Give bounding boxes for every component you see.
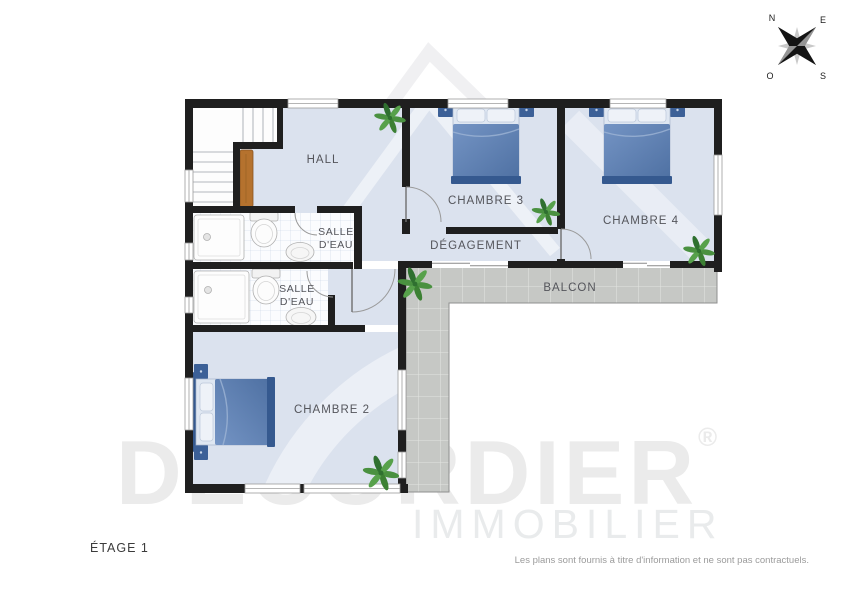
label-balcon: BALCON bbox=[543, 282, 596, 294]
shower-1 bbox=[194, 215, 244, 260]
label-salle-eau-2-line1: SALLE bbox=[279, 283, 315, 295]
shower-drain-1 bbox=[204, 234, 211, 241]
label-salle-eau-1-line1: SALLE bbox=[318, 226, 354, 238]
shower-2 bbox=[194, 271, 249, 323]
floor-label: ÉTAGE 1 bbox=[90, 541, 149, 555]
label-chambre3: CHAMBRE 3 bbox=[448, 195, 524, 207]
shower-drain-2 bbox=[205, 287, 212, 294]
wood-railing bbox=[240, 150, 253, 207]
balcony-floor bbox=[406, 266, 717, 492]
label-degagement: DÉGAGEMENT bbox=[430, 239, 522, 252]
compass-rose-icon: N E S O bbox=[759, 8, 835, 84]
compass-north-label: N bbox=[769, 13, 776, 23]
compass-west-label: O bbox=[766, 71, 773, 81]
compass-east-label: E bbox=[820, 15, 826, 25]
compass-south-label: S bbox=[820, 71, 826, 81]
floor-plan-drawing: HALL CHAMBRE 3 CHAMBRE 4 DÉGAGEMENT BALC… bbox=[0, 0, 848, 600]
label-salle-eau-1-line2: D'EAU bbox=[319, 239, 353, 251]
toilet-2 bbox=[253, 276, 279, 304]
label-hall: HALL bbox=[307, 154, 340, 166]
label-chambre2: CHAMBRE 2 bbox=[294, 404, 370, 416]
disclaimer-text: Les plans sont fournis à titre d'informa… bbox=[515, 555, 809, 566]
label-salle-eau-2-line2: D'EAU bbox=[280, 296, 314, 308]
floor-plan-page: DECORDIER® IMMOBILIER bbox=[0, 0, 848, 600]
toilet-1 bbox=[251, 219, 277, 247]
label-chambre4: CHAMBRE 4 bbox=[603, 215, 679, 227]
